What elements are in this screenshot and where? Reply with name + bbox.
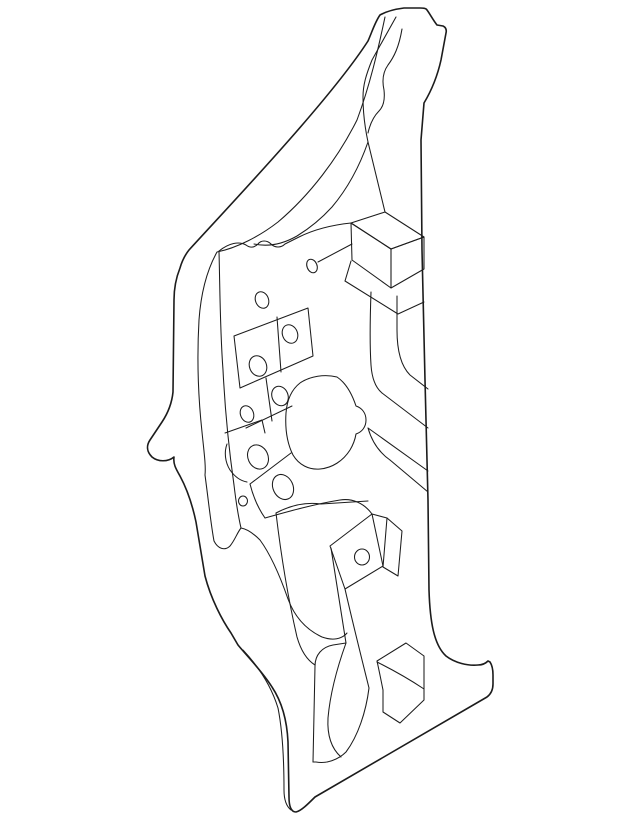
rib-diagonal-3 xyxy=(390,460,428,492)
box-apex-line xyxy=(368,142,385,212)
hole-10 xyxy=(355,549,370,565)
hole-6 xyxy=(238,404,256,425)
diagram-canvas xyxy=(0,0,640,826)
corner-panel-crease xyxy=(377,662,424,689)
lower-flange-inner xyxy=(243,650,291,810)
wavy-parallel-line xyxy=(318,244,352,262)
oval-plate-bottom xyxy=(265,500,372,518)
hole-2 xyxy=(253,290,271,311)
hole-3 xyxy=(279,322,300,345)
hole-9 xyxy=(239,496,248,506)
strip-descender-2 xyxy=(331,548,346,643)
strip-descender-1 xyxy=(345,589,369,688)
wavy-seam-line xyxy=(219,223,351,251)
cell-strip-divider xyxy=(277,317,281,372)
parts-diagram-figure xyxy=(0,0,640,826)
rib-vertical-1 xyxy=(370,292,382,393)
oval-plate-left xyxy=(250,484,265,518)
center-blob-outline xyxy=(286,376,366,469)
lower-band-divider xyxy=(266,378,272,421)
part-line-art-svg xyxy=(0,0,640,826)
web-fold-line xyxy=(219,251,241,528)
lower-band-edge xyxy=(246,406,292,428)
hole-5 xyxy=(269,384,291,409)
sill-panel-inner xyxy=(328,643,346,757)
rib-diagonal-1 xyxy=(382,393,428,428)
bracket-box-side xyxy=(391,237,424,288)
hole-4 xyxy=(246,353,270,379)
plate-hook-curve xyxy=(225,444,247,482)
rib-diagonal-2 xyxy=(368,428,428,471)
tip-pocket-line xyxy=(368,29,402,133)
cell-strip-outline xyxy=(234,308,313,388)
hole-8 xyxy=(268,471,297,503)
outer-contour xyxy=(148,8,493,812)
hole-1 xyxy=(305,258,320,275)
under-box-band xyxy=(345,281,424,314)
hole-band-extension xyxy=(372,514,387,518)
hole-7 xyxy=(244,441,273,472)
sill-panel-outer xyxy=(313,688,369,763)
corner-panel-outline xyxy=(377,643,424,723)
under-box-cap xyxy=(345,261,351,281)
rib-connector xyxy=(368,428,390,460)
bracket-box-front xyxy=(351,223,391,288)
flag-bracket-outline xyxy=(383,518,402,576)
channel-inner-line xyxy=(198,17,385,549)
tip-ridge-line xyxy=(254,17,396,245)
web-descender-line xyxy=(276,513,315,665)
